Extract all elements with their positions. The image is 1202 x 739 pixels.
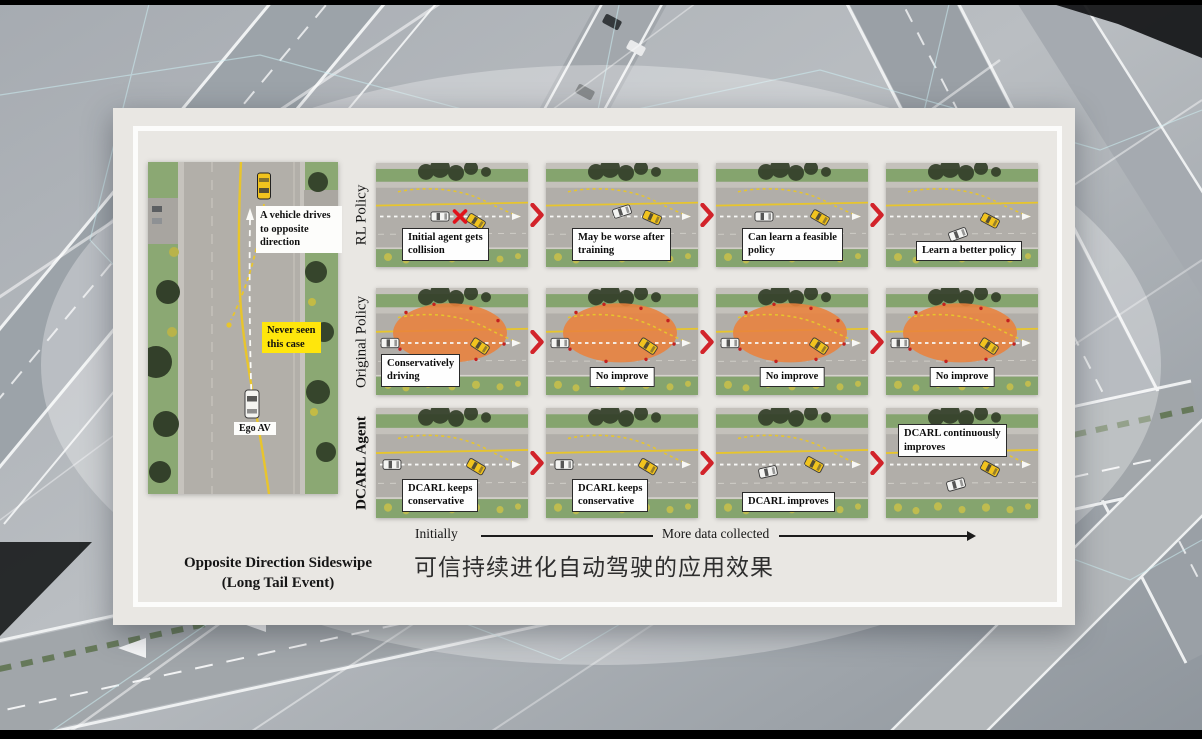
row-label-dcarl-agent: DCARL Agent [354,416,371,510]
panel-caption: DCARL improves [742,492,835,512]
panel-caption: No improve [590,367,655,387]
scenario-panel-r1c3: Can learn a feasiblepolicy [716,163,868,267]
timeline-line-right [779,535,967,537]
progress-chevron-icon [870,330,884,354]
panel-caption: Conservativelydriving [381,354,460,387]
timeline-end-label: More data collected [662,526,769,542]
panel-caption: DCARL continuouslyimproves [898,424,1007,457]
progress-chevron-icon [870,451,884,475]
row-label-rl-policy: RL Policy [354,185,371,246]
timeline-start-label: Initially [415,526,458,542]
scenario-panel-r1c2: May be worse aftertraining [546,163,698,267]
scenario-panel-r2c4: No improve [886,288,1038,395]
scenario-panel-r2c3: No improve [716,288,868,395]
scenario-panel-r1c4: Learn a better policy [886,163,1038,267]
scenario-panel-r1c1: Initial agent getscollision [376,163,528,267]
panel-caption: DCARL keepsconservative [402,479,478,512]
timeline: Initially More data collected [113,524,1075,548]
scenario-panel-r3c2: DCARL keepsconservative [546,408,698,518]
panel-caption: May be worse aftertraining [572,228,671,261]
panel-caption: Can learn a feasiblepolicy [742,228,843,261]
figure-slide-panel: A vehicle drivesto oppositedirection Nev… [113,108,1075,625]
progress-chevron-icon [530,203,544,227]
scenario-panel-r3c3: DCARL improves [716,408,868,518]
timeline-arrowhead-icon [967,531,976,541]
panel-caption: No improve [930,367,995,387]
scenario-panel-r2c2: No improve [546,288,698,395]
progress-chevron-icon [870,203,884,227]
progress-chevron-icon [700,330,714,354]
row-label-original-policy: Original Policy [354,295,371,387]
timeline-line-left [481,535,653,537]
scenario-panel-r3c1: DCARL keepsconservative [376,408,528,518]
progress-chevron-icon [700,203,714,227]
presentation-frame: A vehicle drivesto oppositedirection Nev… [0,0,1202,739]
panel-caption: No improve [760,367,825,387]
scenario-panel-r3c4: DCARL continuouslyimproves [886,408,1038,518]
progress-chevron-icon [530,451,544,475]
panel-caption: Learn a better policy [916,241,1022,261]
slide-title-chinese: 可信持续进化自动驾驶的应用效果 [113,548,1075,582]
scenario-panel-r2c1: Conservativelydriving [376,288,528,395]
progress-chevron-icon [700,451,714,475]
panel-caption: DCARL keepsconservative [572,479,648,512]
panel-caption: Initial agent getscollision [402,228,489,261]
progress-chevron-icon [530,330,544,354]
